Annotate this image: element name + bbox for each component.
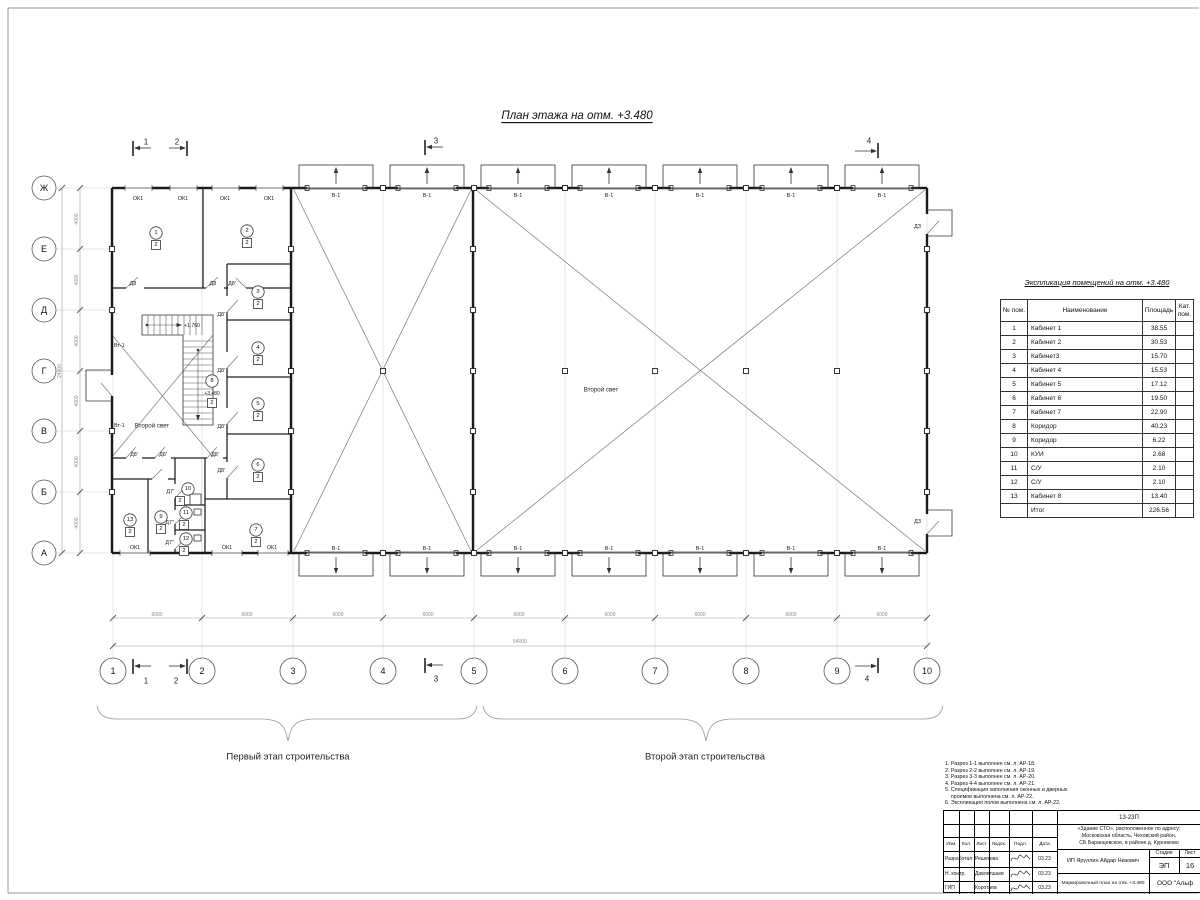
person-name: Решетова — [975, 851, 1009, 867]
room-number: 1 — [154, 230, 157, 236]
table-row: 12С/У2.10 — [1001, 476, 1194, 490]
stage-value: ЭП — [1149, 857, 1179, 873]
section-arrowhead — [180, 146, 186, 150]
room-name-cell: Кабинет 1 — [1028, 322, 1143, 336]
room-num-cell: 11 — [1001, 462, 1028, 476]
room-area-cell: 13.40 — [1143, 490, 1176, 504]
total-label: Итог — [1028, 504, 1143, 518]
column — [563, 186, 568, 191]
stage2-label: Второй этап строительства — [645, 752, 766, 763]
room-cat-cell — [1176, 420, 1194, 434]
column — [471, 247, 476, 252]
plan-label: В-1 — [696, 546, 704, 552]
room-explication: Экспликация помещений на отм. +3.480 № п… — [999, 278, 1195, 518]
table-row: 4Кабинет 415.53 — [1001, 364, 1194, 378]
room-area-cell: 6.22 — [1143, 434, 1176, 448]
table-row: 5Кабинет 517.12 — [1001, 378, 1194, 392]
room-area-cell: 19.50 — [1143, 392, 1176, 406]
column — [289, 429, 294, 434]
drawing-name: Маркировочный план на отм. +3.480 — [1057, 873, 1149, 894]
person-role: Н. контр. — [945, 867, 975, 881]
column — [744, 369, 749, 374]
room-cat-cell — [1176, 476, 1194, 490]
plan-label: 6000 — [876, 612, 887, 618]
plan-label: ОК1 — [178, 196, 188, 202]
room-name-cell: Кабинет 8 — [1028, 490, 1143, 504]
plan-label: ОК1 — [222, 545, 232, 551]
column — [110, 490, 115, 495]
room-name-cell: С/У — [1028, 476, 1143, 490]
plan-label: Д8' — [217, 368, 225, 374]
column — [289, 490, 294, 495]
axis-bubble-label: Д — [41, 305, 47, 315]
room-category: 2 — [182, 522, 185, 528]
plan-label: Д8' — [217, 468, 225, 474]
column — [925, 369, 930, 374]
table-row: 8Коридор40.23 — [1001, 420, 1194, 434]
room-number: 9 — [159, 514, 162, 520]
room-num-cell: 3 — [1001, 350, 1028, 364]
room-category: 2 — [178, 498, 181, 504]
room-num-cell: 10 — [1001, 448, 1028, 462]
entrance-porch — [86, 370, 112, 401]
room-number: 2 — [245, 228, 248, 234]
plan-label: 4000 — [74, 213, 80, 224]
plan-label: 6000 — [694, 612, 705, 618]
axis-bubble-label: Г — [42, 366, 47, 376]
column — [471, 429, 476, 434]
walls — [112, 188, 927, 553]
plan-label: Второй свет — [584, 387, 619, 394]
plan-label: 2 — [174, 677, 179, 686]
axis-bubble-label: Б — [41, 487, 47, 497]
axis-bubble-label: А — [41, 548, 47, 558]
titleblock-col-header: Дата — [1032, 837, 1057, 851]
room-category: 2 — [256, 357, 259, 363]
room-area-cell: 2.10 — [1143, 462, 1176, 476]
windows — [120, 185, 288, 556]
total-num-cell — [1001, 504, 1028, 518]
room-num-cell: 4 — [1001, 364, 1028, 378]
room-area-cell: 2.10 — [1143, 476, 1176, 490]
door-leaf — [227, 300, 238, 312]
titleblock-col-header: Подл. — [1009, 837, 1032, 851]
plan-label: 4000 — [74, 274, 80, 285]
plan-label: 6000 — [332, 612, 343, 618]
stage1-label: Первый этап строительства — [226, 752, 350, 763]
plan-label: В-1 — [878, 193, 886, 199]
room-area-cell: 15.70 — [1143, 350, 1176, 364]
axis-bubble-label: 2 — [199, 666, 204, 676]
titleblock-line — [1057, 849, 1200, 850]
room-area-cell: 17.12 — [1143, 378, 1176, 392]
column — [653, 186, 658, 191]
plan-label: 6000 — [241, 612, 252, 618]
gate-arrowhead — [789, 167, 793, 173]
door-leaf — [927, 221, 939, 234]
gate-arrowhead — [880, 568, 884, 574]
room-number: 5 — [256, 401, 259, 407]
column — [471, 369, 476, 374]
titleblock-line — [1179, 849, 1180, 873]
gate-arrowhead — [516, 568, 520, 574]
room-category: 2 — [182, 548, 185, 554]
plan-label: Д8' — [217, 312, 225, 318]
gate-arrowhead — [425, 167, 429, 173]
signature-squiggle — [1010, 868, 1031, 880]
plan-label: ДЗ — [914, 519, 921, 525]
signature-path — [1011, 871, 1030, 877]
door-leaf — [227, 356, 238, 368]
room-name-cell: Кабинет 5 — [1028, 378, 1143, 392]
sheet-header: Лист — [1179, 849, 1200, 857]
door-leaf — [227, 412, 238, 424]
construction-stage-braces: Первый этап строительства Второй этап ст… — [97, 706, 943, 763]
plan-label: ОК1 — [133, 196, 143, 202]
section-arrowhead — [134, 664, 140, 668]
signature-path — [1011, 885, 1030, 891]
plan-label: В-1 — [332, 193, 340, 199]
col-header-cat: Кат. пом. — [1176, 300, 1194, 322]
axis-bubble-label: 8 — [743, 666, 748, 676]
room-num-cell: 6 — [1001, 392, 1028, 406]
plan-label: 4000 — [74, 395, 80, 406]
plan-label: 3 — [434, 675, 439, 684]
room-number: 10 — [185, 486, 191, 492]
axis-bubble-label: 3 — [290, 666, 295, 676]
column — [925, 429, 930, 434]
table-row: 11С/У2.10 — [1001, 462, 1194, 476]
plan-label: Д8' — [130, 452, 138, 458]
entrance-porch — [927, 210, 952, 236]
room-category: 2 — [256, 474, 259, 480]
person-role: Разработал — [945, 851, 975, 867]
room-num-cell: 5 — [1001, 378, 1028, 392]
room-area-cell: 15.53 — [1143, 364, 1176, 378]
room-area-cell: 38.55 — [1143, 322, 1176, 336]
section-arrowhead — [426, 145, 432, 149]
col-header-area: Площадь — [1143, 300, 1176, 322]
plan-label: 4000 — [74, 335, 80, 346]
plan-label: Вт-1 — [114, 423, 125, 429]
room-area-cell: 30.53 — [1143, 336, 1176, 350]
axis-bubble-label: 9 — [834, 666, 839, 676]
plan-label: В-1 — [514, 546, 522, 552]
plan-label: В-1 — [423, 193, 431, 199]
room-category: 2 — [254, 539, 257, 545]
column — [563, 369, 568, 374]
sink-fixture — [190, 494, 201, 505]
explication-header-row: № пом. Наименование Площадь Кат. пом. — [1001, 300, 1194, 322]
room-area-cell: 40.23 — [1143, 420, 1176, 434]
plan-label: 6000 — [513, 612, 524, 618]
person-date: 03.23 — [1033, 867, 1056, 881]
explication-body: 1Кабинет 138.552Кабинет 230.533Кабинет31… — [1001, 322, 1194, 504]
total-cat-cell — [1176, 504, 1194, 518]
column — [381, 186, 386, 191]
plan-label: 1 — [144, 677, 149, 686]
table-row: 1Кабинет 138.55 — [1001, 322, 1194, 336]
room-number: 6 — [256, 462, 259, 468]
room-number: 11 — [183, 510, 189, 516]
gate-arrowhead — [607, 167, 611, 173]
stair-arrowhead — [177, 323, 183, 327]
project-code: 13-23П — [1057, 811, 1200, 824]
axis-bubble-label: 10 — [922, 666, 932, 676]
room-number: 3 — [256, 289, 259, 295]
plan-label: Второй свет — [135, 423, 170, 430]
address-line: «Здание СТО», расположенное по адресу: — [1057, 826, 1200, 833]
plan-label: 4 — [865, 675, 870, 684]
section-arrowhead — [134, 146, 140, 150]
door-leaf — [236, 278, 246, 288]
plan-label: В-1 — [605, 193, 613, 199]
room-num-cell: 1 — [1001, 322, 1028, 336]
room-cat-cell — [1176, 392, 1194, 406]
column — [289, 247, 294, 252]
section-arrowhead — [180, 664, 186, 668]
plan-label: В-1 — [423, 546, 431, 552]
room-num-cell: 13 — [1001, 490, 1028, 504]
column — [744, 551, 749, 556]
plan-label: ОК1 — [220, 196, 230, 202]
plan-label: 4000 — [74, 517, 80, 528]
plan-label: 6000 — [422, 612, 433, 618]
room-elevation: +3.480 — [204, 391, 220, 397]
room-num-cell: 7 — [1001, 406, 1028, 420]
plan-label: 6000 — [785, 612, 796, 618]
room-cat-cell — [1176, 322, 1194, 336]
gate-arrowhead — [334, 568, 338, 574]
gates — [299, 165, 919, 576]
column — [110, 247, 115, 252]
axis-bubble-label: 7 — [652, 666, 657, 676]
titleblock-col-header: №док. — [989, 837, 1009, 851]
room-cat-cell — [1176, 490, 1194, 504]
address-line: СБ Баранцевское, в районе д. Курниково — [1057, 840, 1200, 847]
plan-label: В-1 — [878, 546, 886, 552]
column — [653, 369, 658, 374]
room-area-cell: 22.90 — [1143, 406, 1176, 420]
company-name: ООО "Альф — [1149, 873, 1200, 894]
sheet-notes: 1. Разрез 1-1 выполнен см. л. АР-18.2. Р… — [945, 761, 1115, 807]
column — [471, 490, 476, 495]
stair-arrowhead — [196, 415, 200, 421]
column — [471, 308, 476, 313]
room-num-cell: 9 — [1001, 434, 1028, 448]
axis-bubble-label: 4 — [380, 666, 385, 676]
plan-label: В-1 — [332, 546, 340, 552]
table-row: 13Кабинет 813.40 — [1001, 490, 1194, 504]
plan-label: Д8' — [228, 281, 236, 287]
room-cat-cell — [1176, 448, 1194, 462]
plan-label: В-1 — [787, 546, 795, 552]
person-name: Коротаев — [975, 881, 1009, 894]
axis-bubbles: 12345678910ЖЕДГВБА — [32, 176, 940, 684]
plan-label: ДЗ — [914, 224, 921, 230]
dimension-lines — [59, 185, 930, 649]
total-value: 226.56 — [1143, 504, 1176, 518]
plan-label: +1.760 — [184, 323, 200, 329]
room-num-cell: 8 — [1001, 420, 1028, 434]
section-arrowhead — [426, 663, 432, 667]
room-cat-cell — [1176, 378, 1194, 392]
table-row: 3Кабинет315.70 — [1001, 350, 1194, 364]
room-name-cell: Кабинет 7 — [1028, 406, 1143, 420]
room-name-cell: С/У — [1028, 462, 1143, 476]
person-date: 03.23 — [1033, 881, 1056, 894]
axis-bubble-label: Ж — [40, 183, 49, 193]
table-row: 6Кабинет 619.50 — [1001, 392, 1194, 406]
col-header-num: № пом. — [1001, 300, 1028, 322]
person-date: 03.23 — [1033, 851, 1056, 867]
table-row: 9Коридор6.22 — [1001, 434, 1194, 448]
column — [744, 186, 749, 191]
plan-label: Вт-1 — [114, 343, 125, 349]
stage1-brace — [97, 706, 477, 741]
plan-label: Д8 — [210, 281, 217, 287]
toilet-fixture — [194, 535, 201, 541]
room-number: 12 — [183, 536, 189, 542]
plan-label: 54000 — [513, 639, 527, 645]
drawing-title: План этажа на отм. +3.480 — [501, 110, 653, 122]
title-block: 13-23П «Здание СТО», расположенное по ад… — [943, 810, 1200, 893]
section-arrowhead — [871, 664, 877, 668]
plan-labels: 122232425262728+3.480292102112122132ОК1О… — [57, 137, 921, 686]
plan-label: В-1 — [787, 193, 795, 199]
room-cat-cell — [1176, 350, 1194, 364]
column — [381, 551, 386, 556]
plan-label: Д8 — [130, 281, 137, 287]
sheet-number: 16 — [1179, 857, 1200, 873]
stair-outline — [142, 315, 213, 425]
column — [653, 551, 658, 556]
plan-label: 2 — [175, 138, 180, 147]
plan-label: 24000 — [57, 364, 63, 378]
gate-arrowhead — [607, 568, 611, 574]
room-num-cell: 12 — [1001, 476, 1028, 490]
room-category: 2 — [256, 413, 259, 419]
column — [472, 186, 477, 191]
column — [289, 369, 294, 374]
plan-label: 6000 — [151, 612, 162, 618]
column — [835, 186, 840, 191]
table-row: 10КУИ2.68 — [1001, 448, 1194, 462]
address-line: Московская область, Чеховский район, — [1057, 833, 1200, 840]
drawing-sheet: План этажа на отм. +3.480 Первый этап ст… — [0, 0, 1200, 900]
section-arrowhead — [871, 149, 877, 153]
titleblock-col-header: Кол. — [959, 837, 974, 851]
door-leaf — [152, 469, 162, 479]
second-light-cross-lines — [112, 190, 925, 551]
room-category: 2 — [159, 526, 162, 532]
titleblock-line — [1149, 849, 1150, 894]
room-cat-cell — [1176, 364, 1194, 378]
plan-label: В-1 — [696, 193, 704, 199]
room-number: 7 — [254, 527, 257, 533]
explication-title: Экспликация помещений на отм. +3.480 — [999, 278, 1195, 287]
door-leaf — [101, 383, 112, 396]
gate-arrowhead — [425, 568, 429, 574]
signature-squiggle — [1010, 852, 1031, 866]
titleblock-col-header: Изм. — [944, 837, 959, 851]
table-row: 2Кабинет 230.53 — [1001, 336, 1194, 350]
person-name: Давлетшаев — [975, 867, 1009, 881]
column — [563, 551, 568, 556]
room-area-cell: 2.68 — [1143, 448, 1176, 462]
note-line: 6. Экспликация полов выполнена см. л. АР… — [945, 800, 1115, 807]
room-name-cell: КУИ — [1028, 448, 1143, 462]
person-role: ГИП — [945, 881, 975, 894]
axis-bubble-label: 5 — [471, 666, 476, 676]
plan-label: ОК1 — [267, 545, 277, 551]
columns — [110, 186, 930, 556]
door-leaf — [227, 466, 238, 478]
column — [925, 308, 930, 313]
plan-label: В-1 — [605, 546, 613, 552]
plan-label: Д7' — [166, 489, 174, 495]
grid-lines — [56, 184, 927, 658]
plan-label: 4 — [867, 137, 872, 146]
section-marks — [133, 140, 878, 674]
axis-bubble-label: 1 — [110, 666, 115, 676]
plan-label: Д8' — [211, 452, 219, 458]
column — [835, 551, 840, 556]
project-address: «Здание СТО», расположенное по адресу: М… — [1057, 824, 1200, 849]
room-name-cell: Кабинет3 — [1028, 350, 1143, 364]
plan-label: Д8' — [159, 452, 167, 458]
gate-arrowhead — [880, 167, 884, 173]
axis-bubble-label: Е — [41, 244, 47, 254]
gate-arrowhead — [334, 167, 338, 173]
plan-label: Д7'' — [165, 540, 174, 546]
entrance-porch — [927, 510, 952, 536]
gate-arrowhead — [789, 568, 793, 574]
column — [110, 429, 115, 434]
room-category: 2 — [256, 301, 259, 307]
plan-label: Д8' — [217, 424, 225, 430]
column — [925, 247, 930, 252]
room-category: 2 — [245, 240, 248, 246]
plan-label: 6000 — [604, 612, 615, 618]
room-name-cell: Кабинет 4 — [1028, 364, 1143, 378]
signature-squiggle — [1010, 882, 1031, 893]
door-leaf — [927, 521, 939, 534]
explication-table: № пом. Наименование Площадь Кат. пом. 1К… — [1000, 299, 1194, 518]
room-cat-cell — [1176, 406, 1194, 420]
gate-arrowhead — [698, 167, 702, 173]
titleblock-col-header: Лист — [974, 837, 989, 851]
plan-label: 1 — [144, 138, 149, 147]
stage-header: Стадия — [1149, 849, 1179, 857]
room-num-cell: 2 — [1001, 336, 1028, 350]
plan-label: Д7'' — [165, 520, 174, 526]
room-name-cell: Коридор — [1028, 420, 1143, 434]
column — [381, 369, 386, 374]
titleblock-line — [1149, 857, 1200, 858]
room-name-cell: Кабинет 6 — [1028, 392, 1143, 406]
col-header-name: Наименование — [1028, 300, 1143, 322]
plan-label: ОК1 — [130, 545, 140, 551]
column — [925, 490, 930, 495]
plan-label: 3 — [434, 137, 439, 146]
plan-label: В-1 — [514, 193, 522, 199]
room-number: 8 — [210, 378, 213, 384]
toilet-fixture — [194, 509, 201, 515]
titleblock-line — [944, 824, 1200, 825]
room-name-cell: Кабинет 2 — [1028, 336, 1143, 350]
column — [835, 369, 840, 374]
